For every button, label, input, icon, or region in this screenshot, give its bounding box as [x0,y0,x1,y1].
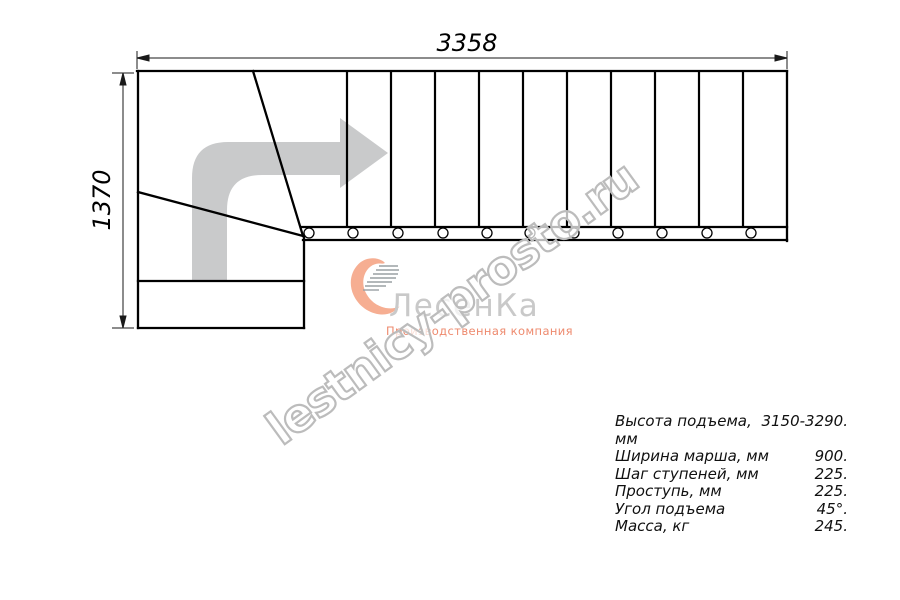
baluster-circle [657,228,667,238]
spec-label: Высота подъема, мм [615,413,761,448]
spec-row-angle: Угол подъема 45°. [615,501,848,519]
spec-label: Угол подъема [615,501,725,519]
spec-value: 245. [815,518,848,536]
baluster-circle [482,228,492,238]
baluster-circle [525,228,535,238]
spec-value: 225. [815,466,848,484]
dimension-height-label: 1370 [88,159,116,241]
baluster-circle [393,228,403,238]
specs-table: Высота подъема, мм 3150-3290. Ширина мар… [615,413,848,536]
baluster-circle [746,228,756,238]
baluster-circle [304,228,314,238]
baluster-circle [438,228,448,238]
baluster-circle [702,228,712,238]
arrowhead-bottom [120,316,126,328]
arrowhead-top [120,73,126,85]
tread-lines [347,71,743,227]
baluster-circles [304,228,756,238]
spec-row-height: Высота подъема, мм 3150-3290. [615,413,848,448]
logo-tagline: Производственная компания [386,324,573,338]
spec-value: 225. [815,483,848,501]
baluster-circle [348,228,358,238]
logo-title: ЛесенКа [389,288,539,324]
spec-value: 900. [815,448,848,466]
dimension-width-label: 3358 [422,29,512,57]
spec-row-step-pitch: Шаг ступеней, мм 225. [615,466,848,484]
spec-row-flight-width: Ширина марша, мм 900. [615,448,848,466]
spec-label: Проступь, мм [615,483,722,501]
arrowhead-left [137,55,149,61]
spec-row-mass: Масса, кг 245. [615,518,848,536]
logo-stair-lines [363,266,399,290]
baluster-circle [569,228,579,238]
spec-value: 45°. [817,501,848,519]
blueprint-canvas: 3358 1370 ЛесенКа Производственная компа… [0,0,900,600]
spec-label: Масса, кг [615,518,689,536]
spec-label: Ширина марша, мм [615,448,769,466]
spec-row-tread-depth: Проступь, мм 225. [615,483,848,501]
arrowhead-right [775,55,787,61]
spec-label: Шаг ступеней, мм [615,466,759,484]
spec-value: 3150-3290. [761,413,848,448]
baluster-circle [613,228,623,238]
